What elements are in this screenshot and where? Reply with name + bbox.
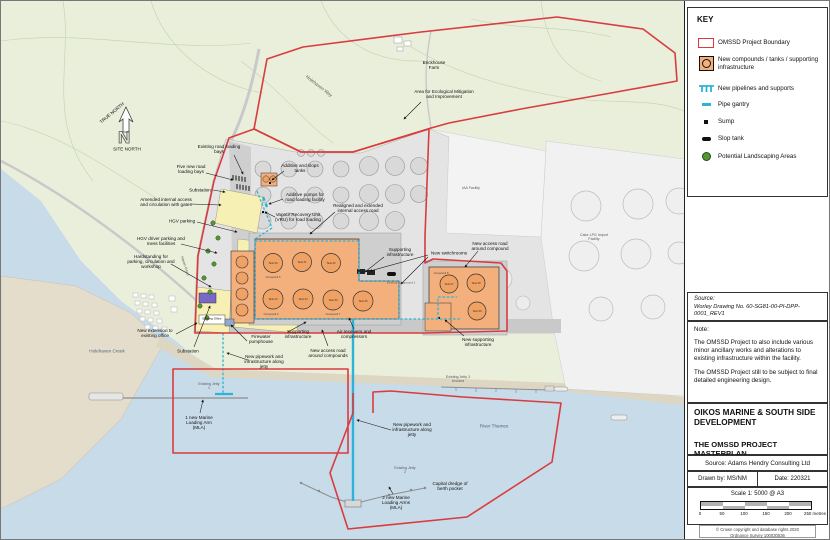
consultant-row: Source: Adams Hendry Consulting Ltd — [687, 455, 828, 471]
note-paragraph-2: The OMSSD Project still to be subject to… — [694, 369, 821, 385]
drawn-date-row: Drawn by: MS/NM Date: 220321 — [687, 471, 828, 487]
legend-item-slop-tank: Slop tank — [694, 135, 824, 143]
source-drawing-number: Worley Drawing No. 60-SG81-00-PI-DPP-000… — [694, 304, 821, 318]
key-legend: KEY OMSSD Project Boundary New compounds… — [687, 7, 828, 197]
legend-item-landscaping: Potential Landscaping Areas — [694, 152, 824, 161]
tank-label: Tank 67 — [444, 282, 454, 286]
drawn-by: Drawn by: MS/NM — [688, 472, 758, 486]
scale-bar — [700, 501, 812, 510]
compound-label: Compound 5 — [266, 275, 281, 279]
source-box: Source: Worley Drawing No. 60-SG81-00-PI… — [687, 292, 828, 321]
tank-label: Tank 64 — [298, 297, 308, 301]
tank-label: Tank 62 — [326, 261, 336, 265]
boundary-swatch-icon — [694, 38, 718, 48]
scale-tick: 50 — [720, 511, 725, 516]
side-panel: KEY OMSSD Project Boundary New compounds… — [684, 1, 830, 540]
scale-text: Scale 1: 5000 @ A3 — [688, 491, 827, 497]
switchroom-box — [357, 269, 365, 274]
pipeline-swatch-icon — [694, 84, 718, 93]
copyright-box: © Crown copyright and database rights 20… — [699, 525, 816, 538]
slop-tank-symbol — [387, 272, 396, 276]
tank-label: Tank 69 — [472, 309, 482, 313]
copyright-line-1: © Crown copyright and database rights 20… — [700, 527, 815, 533]
slop-tank-swatch-icon — [694, 137, 718, 141]
scale-tick: 0 — [699, 511, 701, 516]
compass-n-letter: N — [118, 128, 130, 147]
firewater-pumphouse-box — [225, 319, 234, 326]
legend-item-sump: Sump — [694, 118, 824, 126]
key-title: KEY — [697, 15, 827, 24]
tank-label: Tank 66 — [358, 299, 368, 303]
source-heading: Source: — [694, 296, 821, 302]
legend-item-boundary: OMSSD Project Boundary — [694, 38, 824, 48]
compound-label: Compound 7 — [326, 312, 341, 316]
note-paragraph-1: The OMSSD Project to also include variou… — [694, 339, 821, 363]
tank-label: Tank 61 — [297, 260, 307, 264]
note-box: Note: The OMSSD Project to also include … — [687, 321, 828, 403]
note-heading: Note: — [694, 326, 821, 333]
compound-swatch-icon — [694, 56, 718, 71]
scale-tick: 100 — [740, 511, 747, 516]
legend-item-gantry: Pipe gantry — [694, 101, 824, 109]
scale-tick: 200 — [784, 511, 791, 516]
title-block: OIKOS MARINE & SOUTH SIDE DEVELOPMENT TH… — [687, 403, 828, 455]
date: Date: 220321 — [758, 472, 827, 486]
scale-tick: 250 metres — [804, 511, 826, 516]
scale-row: Scale 1: 5000 @ A3 0 50 100 150 200 250 … — [687, 487, 828, 525]
site-plan-map: Tank 60 Tank 61 Tank 62 Tank 63 Tank 64 … — [1, 1, 684, 540]
landscaping-swatch-icon — [694, 152, 718, 161]
substation-box — [199, 293, 216, 303]
consultant-source: Source: Adams Hendry Consulting Ltd — [705, 460, 810, 467]
tank-label: Tank 68 — [471, 281, 481, 285]
sump-swatch-icon — [694, 120, 718, 124]
project-title: OIKOS MARINE & SOUTH SIDE DEVELOPMENT — [694, 408, 821, 429]
pipe-gantry-swatch-icon — [694, 103, 718, 106]
tank-label: Tank 63 — [268, 297, 278, 301]
existing-office-box — [199, 315, 225, 324]
compound-label: Compound 8 — [434, 271, 449, 275]
scale-tick: 150 — [762, 511, 769, 516]
tank-label: Tank 65 — [328, 298, 338, 302]
copyright-line-2: Ordnance Survey 100030536 — [700, 533, 815, 539]
masterplan-sheet: Tank 60 Tank 61 Tank 62 Tank 63 Tank 64 … — [0, 0, 830, 540]
legend-item-pipelines: New pipelines and supports — [694, 84, 824, 93]
legend-item-compounds: New compounds / tanks / supporting infra… — [694, 56, 824, 72]
tank-label: Tank 60 — [268, 261, 278, 265]
compound-label: Compound 6 — [264, 312, 279, 316]
